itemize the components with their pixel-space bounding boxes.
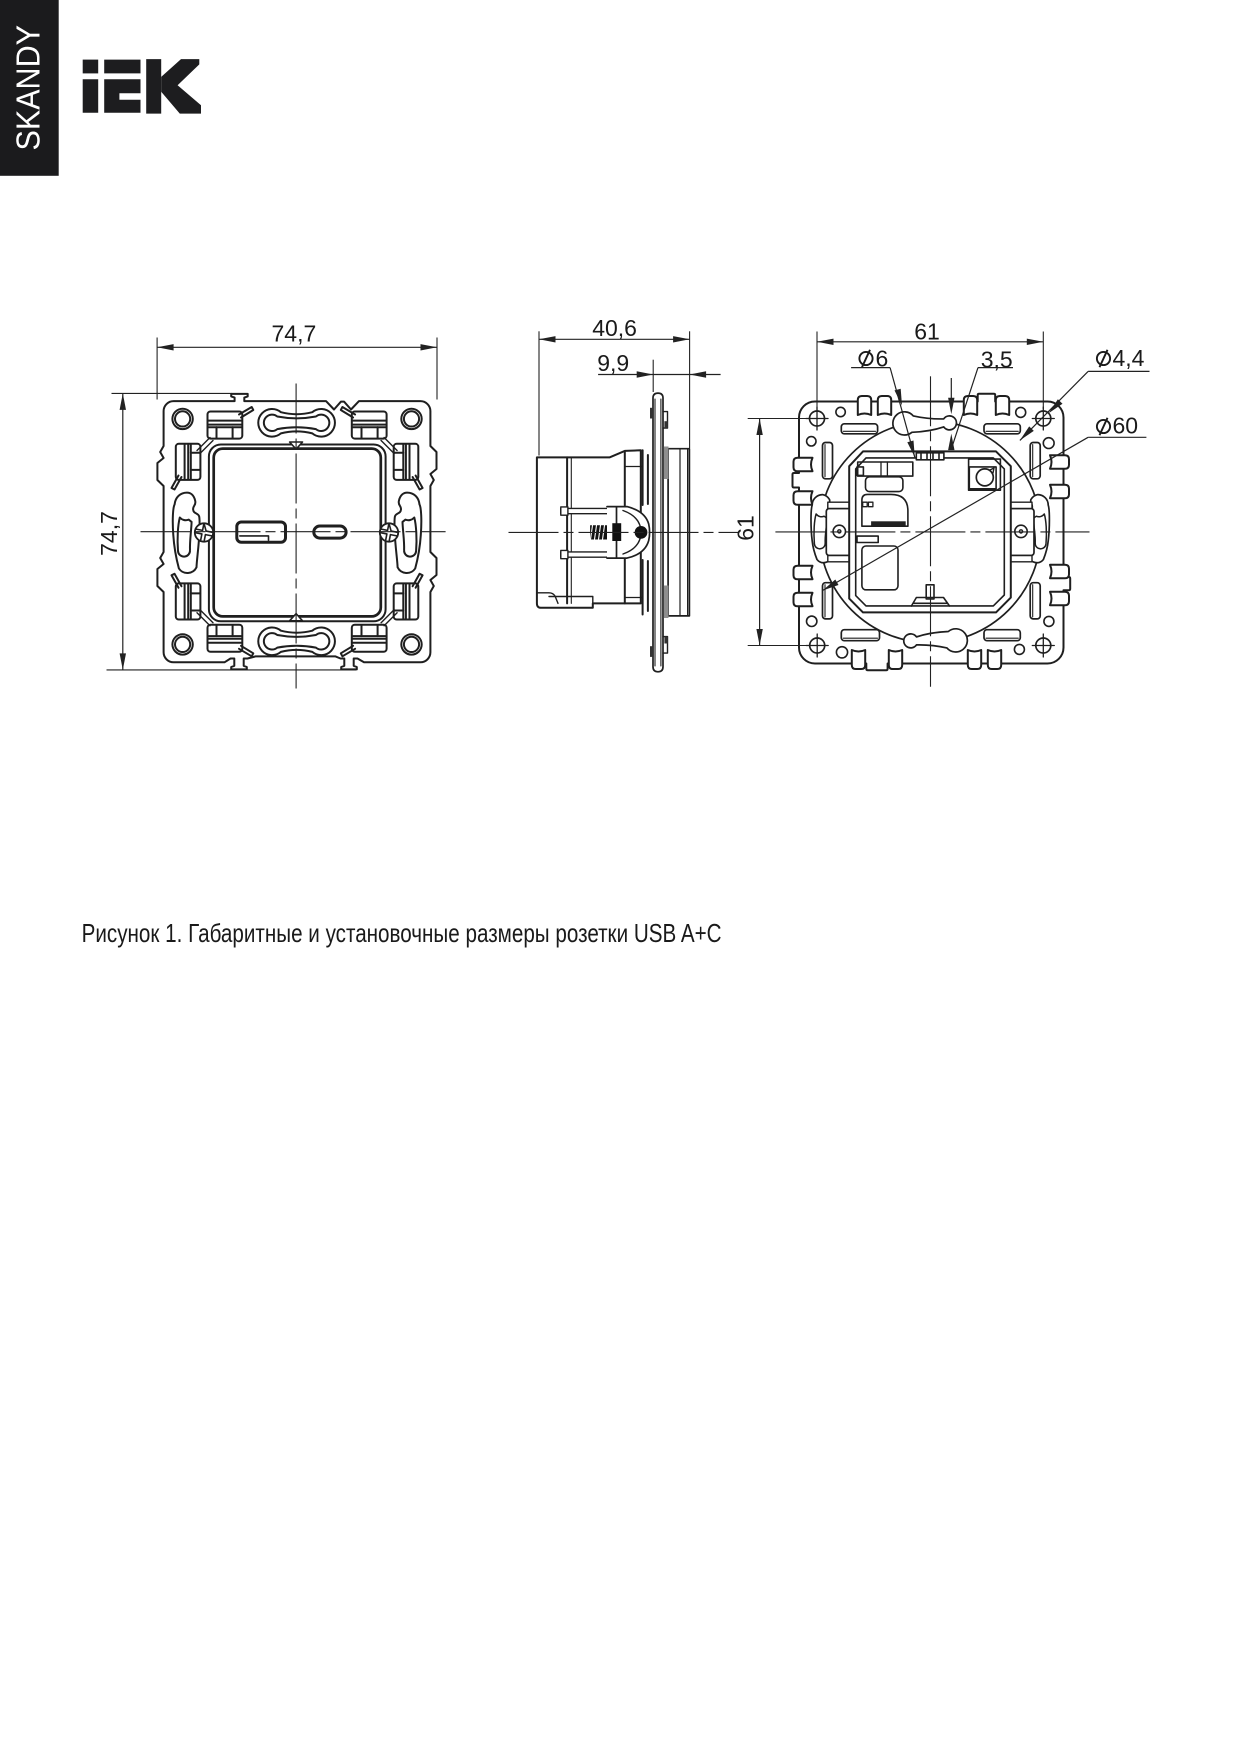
svg-text:Рисунок 1. Габаритные и устано: Рисунок 1. Габаритные и установочные раз… bbox=[82, 918, 722, 948]
svg-text:74,7: 74,7 bbox=[272, 320, 317, 346]
svg-text:74,7: 74,7 bbox=[96, 511, 122, 556]
svg-text:SKANDY: SKANDY bbox=[9, 25, 46, 151]
svg-text:61: 61 bbox=[733, 515, 759, 541]
svg-text:61: 61 bbox=[914, 319, 940, 345]
svg-text:6: 6 bbox=[876, 345, 889, 371]
svg-text:9,9: 9,9 bbox=[597, 350, 629, 376]
svg-text:4,4: 4,4 bbox=[1113, 345, 1145, 371]
svg-text:3,5: 3,5 bbox=[981, 346, 1013, 372]
svg-text:40,6: 40,6 bbox=[592, 315, 637, 341]
svg-text:60: 60 bbox=[1113, 413, 1139, 439]
